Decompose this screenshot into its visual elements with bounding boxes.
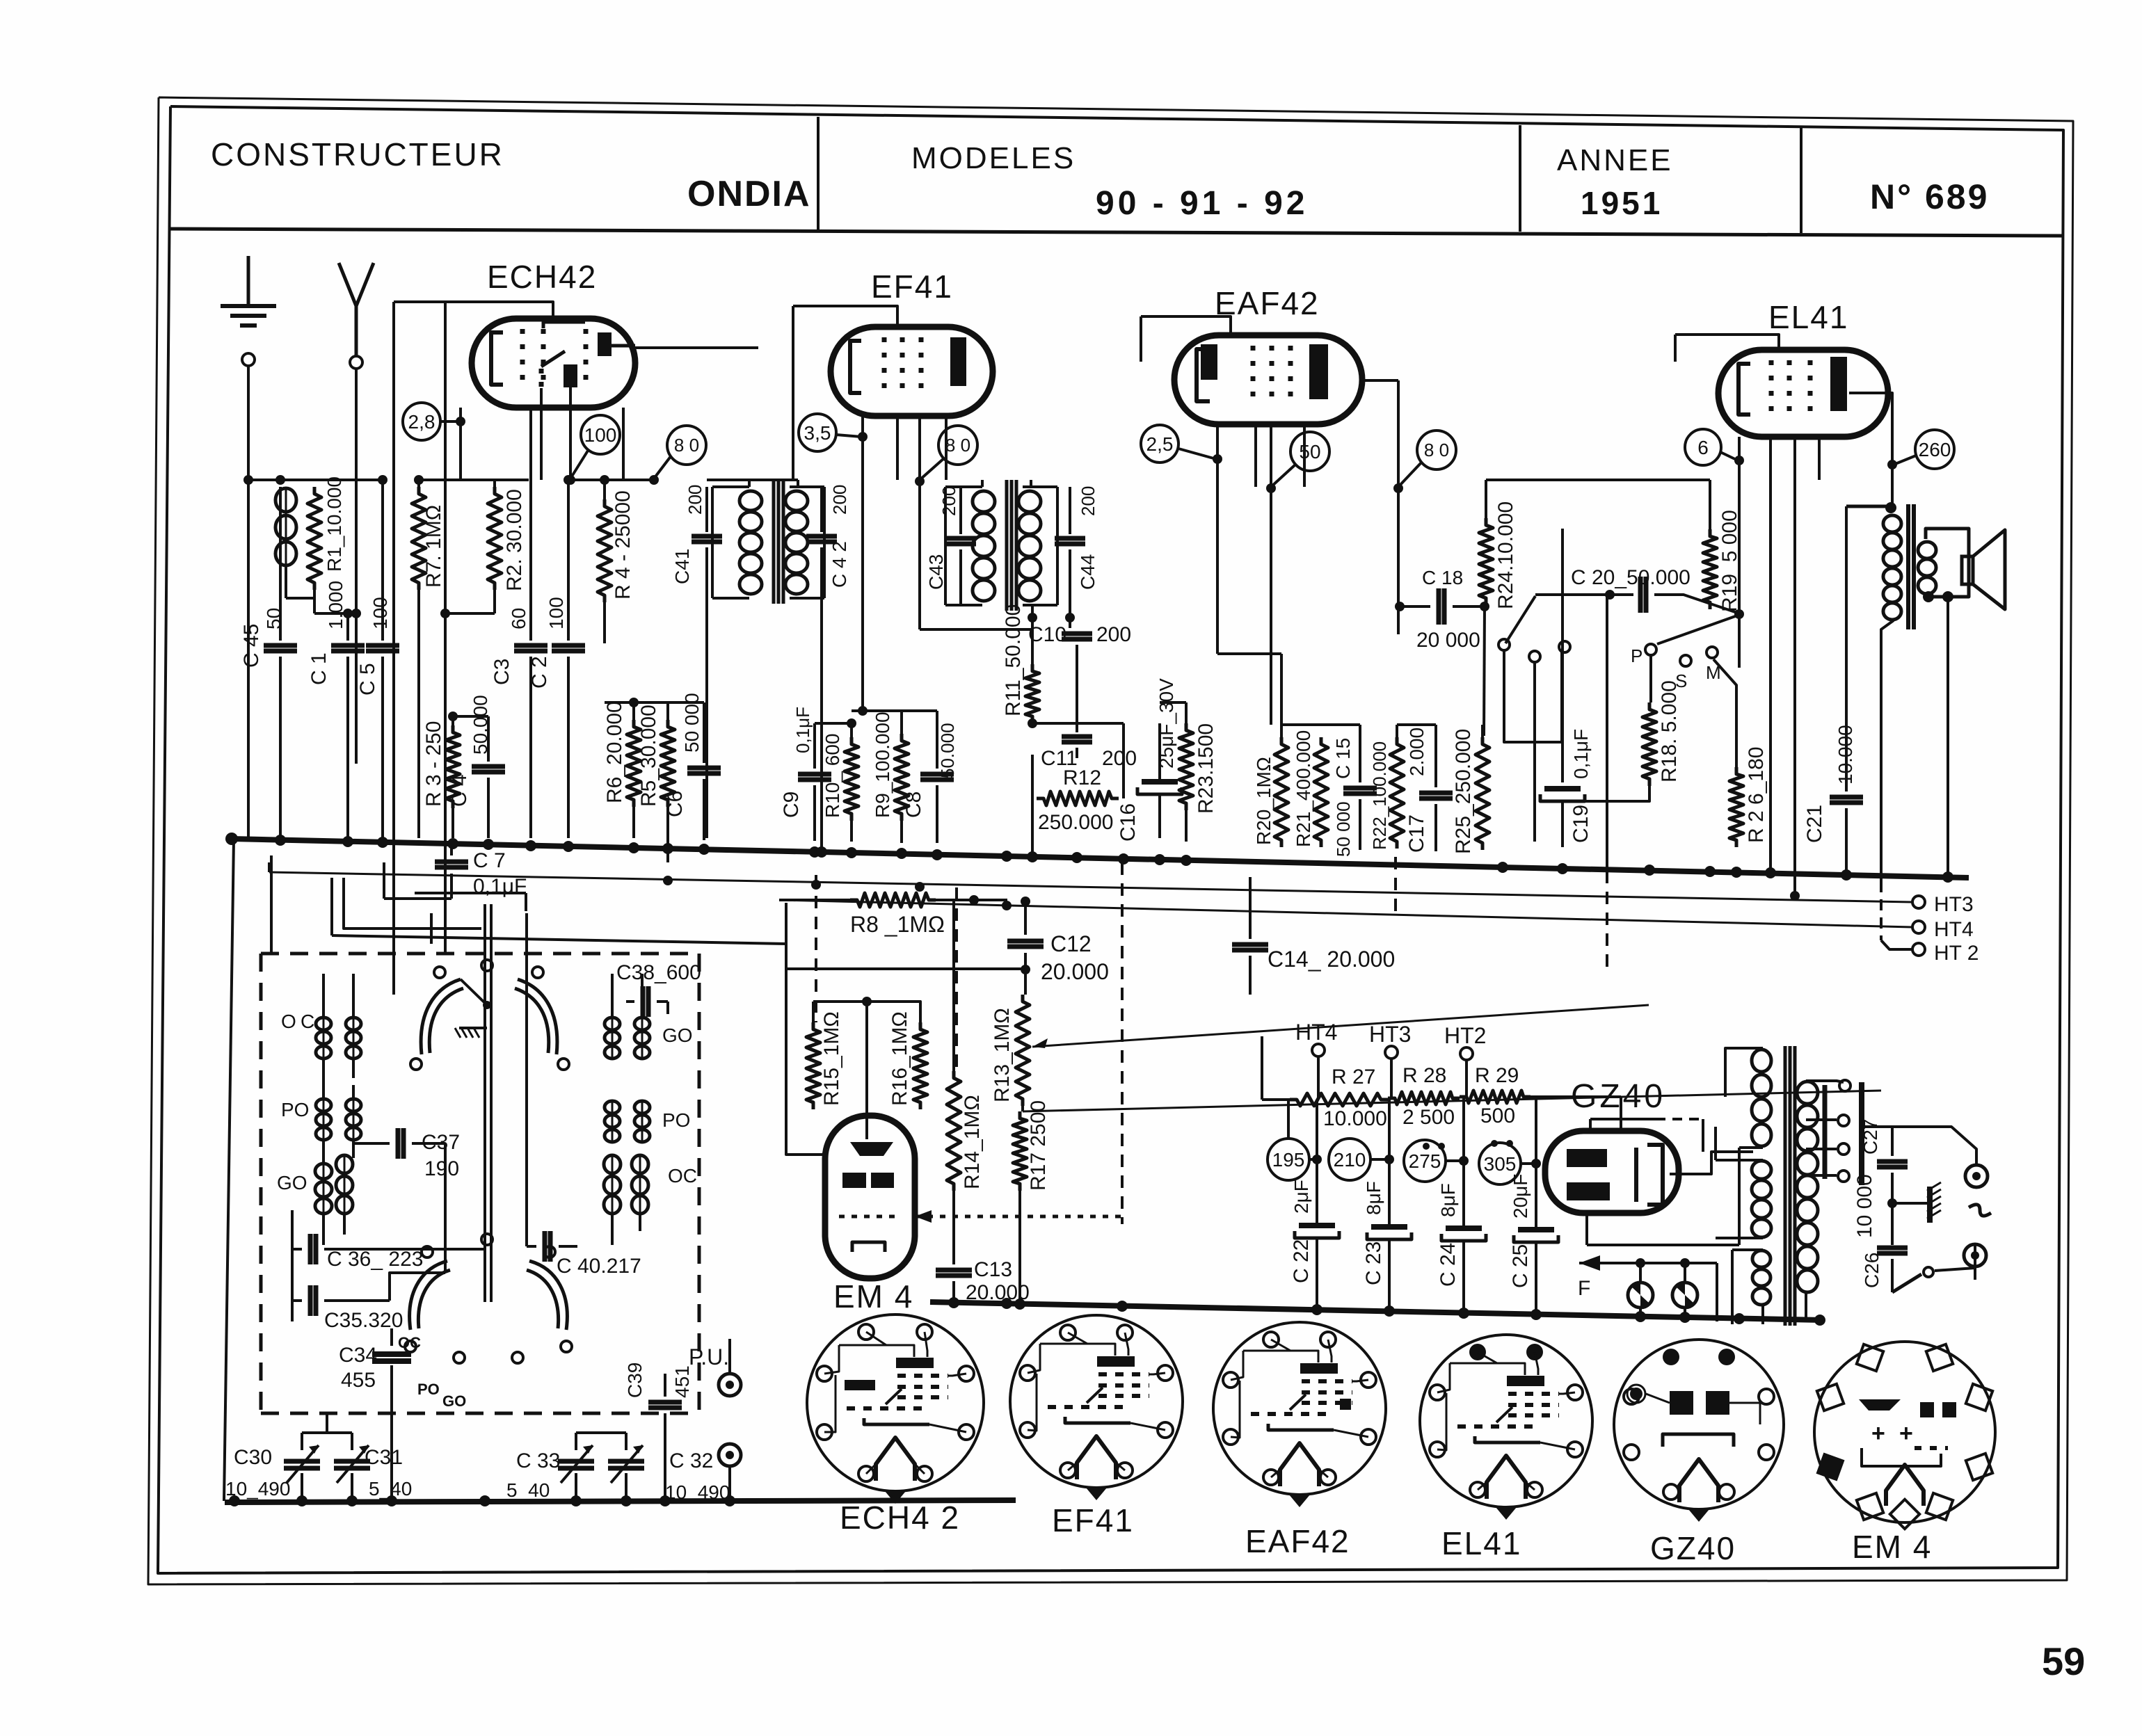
svg-text:200: 200	[1102, 747, 1137, 770]
svg-text:C26: C26	[1861, 1253, 1883, 1288]
svg-text:50: 50	[1299, 441, 1320, 463]
svg-text:C 22: C 22	[1290, 1239, 1313, 1283]
svg-text:100: 100	[369, 597, 391, 629]
svg-text:500: 500	[1480, 1104, 1515, 1127]
svg-text:ECH42: ECH42	[487, 259, 597, 295]
svg-text:P: P	[1631, 645, 1643, 666]
svg-text:C9: C9	[780, 791, 803, 818]
svg-text:C 15: C 15	[1332, 738, 1354, 779]
svg-text:C 2: C 2	[528, 656, 551, 689]
svg-text:C 40.217: C 40.217	[557, 1255, 641, 1278]
svg-text:200: 200	[938, 486, 959, 516]
svg-text:R18. 5.000: R18. 5.000	[1658, 680, 1681, 782]
svg-text:195: 195	[1272, 1149, 1305, 1171]
svg-text:260: 260	[1919, 439, 1951, 460]
svg-text:2.000: 2.000	[1406, 728, 1428, 776]
svg-text:EAF42: EAF42	[1245, 1523, 1350, 1559]
svg-text:F: F	[1578, 1277, 1590, 1300]
svg-text:8 0: 8 0	[945, 435, 970, 456]
svg-text:451: 451	[671, 1365, 693, 1398]
svg-text:50 000: 50 000	[681, 693, 703, 753]
svg-text:1.000: 1.000	[325, 581, 346, 629]
svg-text:R1_10.000: R1_10.000	[323, 476, 345, 572]
svg-text:HT4: HT4	[1295, 1020, 1337, 1045]
svg-text:C14_ 20.000: C14_ 20.000	[1268, 947, 1395, 972]
svg-text:C 5: C 5	[356, 663, 379, 696]
svg-text:C 25: C 25	[1509, 1244, 1532, 1288]
svg-text:100: 100	[545, 597, 567, 629]
svg-text:OC: OC	[398, 1334, 421, 1351]
svg-text:50 000: 50 000	[1333, 801, 1354, 857]
svg-text:C39: C39	[624, 1363, 646, 1398]
svg-text:GO: GO	[662, 1024, 693, 1046]
svg-text:100: 100	[584, 424, 617, 446]
svg-text:GO: GO	[442, 1392, 466, 1410]
svg-text:N° 689: N° 689	[1870, 177, 1989, 216]
svg-text:MODELES: MODELES	[911, 141, 1076, 175]
svg-text:ANNEE: ANNEE	[1557, 143, 1673, 177]
svg-text:8μF: 8μF	[1437, 1183, 1459, 1217]
svg-text:R5_30.000: R5_30.000	[637, 705, 660, 807]
svg-text:R 2 6_180: R 2 6_180	[1745, 747, 1768, 843]
svg-text:R23.1500: R23.1500	[1194, 723, 1217, 814]
svg-text:R2. 30.000: R2. 30.000	[503, 489, 526, 591]
svg-text:8μF: 8μF	[1363, 1181, 1384, 1215]
svg-text:60: 60	[508, 608, 529, 629]
svg-text:R9_100.000: R9_100.000	[872, 712, 893, 818]
svg-text:R13_1MΩ: R13_1MΩ	[991, 1008, 1014, 1102]
svg-text:C 32: C 32	[669, 1449, 713, 1472]
svg-text:R20_1MΩ: R20_1MΩ	[1253, 757, 1274, 845]
svg-text:1951: 1951	[1581, 185, 1663, 221]
svg-text:R21_400.000: R21_400.000	[1293, 730, 1314, 847]
svg-text:C41: C41	[671, 549, 693, 584]
svg-text:C38_600: C38_600	[616, 961, 701, 984]
svg-text:GZ40: GZ40	[1571, 1078, 1665, 1115]
svg-text:C44: C44	[1077, 554, 1098, 590]
svg-text:R10_ 600: R10_ 600	[822, 734, 843, 818]
svg-text:6: 6	[1697, 437, 1709, 458]
svg-text:0,1μF: 0,1μF	[792, 707, 813, 753]
svg-text:50.000: 50.000	[470, 695, 491, 755]
svg-text:8 0: 8 0	[1424, 440, 1449, 460]
svg-text:HT2: HT2	[1444, 1023, 1486, 1048]
svg-text:50.000: 50.000	[937, 723, 958, 778]
svg-text:C3: C3	[490, 659, 513, 685]
svg-text:200: 200	[685, 485, 705, 515]
svg-text:59: 59	[2042, 1639, 2085, 1683]
svg-text:EF41: EF41	[1052, 1502, 1134, 1538]
svg-text:C 4 2: C 4 2	[829, 541, 850, 588]
svg-text:C 45: C 45	[240, 624, 263, 668]
svg-text:200: 200	[1096, 623, 1131, 646]
svg-text:P.U.: P.U.	[689, 1344, 729, 1369]
svg-text:R24.10.000: R24.10.000	[1494, 501, 1517, 609]
svg-text:C43: C43	[925, 554, 947, 590]
svg-text:90 - 91 - 92: 90 - 91 - 92	[1096, 185, 1308, 222]
svg-text:25μF_30V: 25μF_30V	[1156, 678, 1177, 769]
svg-text:R 28: R 28	[1402, 1064, 1446, 1087]
svg-text:C21: C21	[1803, 805, 1826, 843]
svg-text:PO: PO	[662, 1109, 690, 1131]
svg-text:HT4: HT4	[1934, 918, 1974, 941]
svg-text:R8 _1MΩ: R8 _1MΩ	[850, 912, 945, 937]
svg-text:C 18: C 18	[1422, 567, 1463, 588]
svg-text:GZ40: GZ40	[1650, 1530, 1736, 1566]
svg-text:C8: C8	[902, 791, 925, 818]
svg-text:C31: C31	[365, 1446, 403, 1469]
svg-text:EF41: EF41	[871, 268, 953, 305]
svg-text:20.000: 20.000	[1041, 959, 1109, 984]
svg-text:C30: C30	[234, 1446, 272, 1469]
svg-text:10.000: 10.000	[1323, 1107, 1387, 1130]
svg-text:2,5: 2,5	[1146, 433, 1174, 455]
svg-text:R15_1MΩ: R15_1MΩ	[820, 1011, 843, 1106]
svg-text:R11_50.000: R11_50.000	[1002, 604, 1025, 716]
svg-text:0,1μF: 0,1μF	[473, 875, 527, 898]
svg-text:R 3 - 250: R 3 - 250	[422, 721, 445, 807]
svg-text:C13: C13	[974, 1258, 1012, 1281]
svg-text:3,5: 3,5	[804, 422, 831, 444]
svg-text:C 23: C 23	[1362, 1241, 1385, 1285]
svg-text:+: +	[1899, 1420, 1913, 1447]
svg-text:R22_100.000: R22_100.000	[1369, 741, 1390, 850]
svg-text:C 7: C 7	[473, 849, 506, 872]
svg-text:GO: GO	[277, 1172, 307, 1193]
svg-text:OC: OC	[668, 1165, 697, 1187]
svg-text:R17 2500: R17 2500	[1027, 1100, 1050, 1191]
svg-text:305: 305	[1484, 1153, 1517, 1175]
svg-text:200: 200	[829, 485, 850, 515]
svg-text:5_40: 5_40	[506, 1479, 550, 1501]
svg-text:C27: C27	[1860, 1119, 1881, 1155]
svg-text:8 0: 8 0	[674, 435, 699, 456]
svg-text:2 500: 2 500	[1402, 1106, 1455, 1129]
svg-text:R14_1MΩ: R14_1MΩ	[961, 1095, 984, 1189]
svg-text:C10: C10	[1028, 623, 1066, 646]
svg-text:455: 455	[341, 1369, 376, 1392]
svg-text:HT 2: HT 2	[1934, 942, 1979, 965]
svg-text:C19: C19	[1569, 805, 1592, 843]
svg-text:R 4 - 25000: R 4 - 25000	[612, 490, 634, 600]
svg-text:CONSTRUCTEUR: CONSTRUCTEUR	[211, 136, 504, 172]
svg-text:20 000: 20 000	[1416, 629, 1480, 652]
svg-text:R 29: R 29	[1475, 1064, 1519, 1087]
svg-text:+: +	[1871, 1420, 1885, 1447]
svg-text:HT3: HT3	[1369, 1022, 1411, 1047]
svg-text:O: O	[281, 1011, 296, 1032]
svg-text:EL41: EL41	[1441, 1525, 1521, 1561]
svg-text:C 36_ 223: C 36_ 223	[327, 1248, 423, 1271]
svg-text:C 33: C 33	[516, 1449, 560, 1472]
svg-text:200: 200	[1078, 486, 1098, 516]
svg-text:50: 50	[263, 608, 285, 629]
svg-text:C: C	[301, 1011, 314, 1032]
svg-text:C17: C17	[1405, 814, 1428, 853]
svg-text:2,8: 2,8	[408, 411, 435, 433]
svg-text:2μF: 2μF	[1290, 1180, 1312, 1214]
svg-text:R12: R12	[1063, 766, 1101, 789]
svg-text:EM 4: EM 4	[833, 1278, 913, 1315]
svg-text:ONDIA: ONDIA	[687, 174, 811, 214]
svg-text:20μF: 20μF	[1510, 1174, 1531, 1219]
svg-text:C 1: C 1	[307, 652, 330, 685]
svg-text:R 27: R 27	[1332, 1066, 1375, 1088]
svg-text:C 24: C 24	[1437, 1243, 1460, 1287]
svg-text:EL41: EL41	[1768, 299, 1848, 335]
svg-text:PO: PO	[417, 1381, 440, 1398]
svg-text:ECH4 2: ECH4 2	[840, 1500, 960, 1536]
svg-text:C12: C12	[1050, 931, 1092, 956]
svg-text:250.000: 250.000	[1038, 811, 1113, 834]
svg-text:R7. 1MΩ: R7. 1MΩ	[422, 505, 445, 588]
svg-text:PO: PO	[281, 1099, 309, 1120]
svg-text:190: 190	[424, 1157, 459, 1180]
svg-text:C16: C16	[1117, 803, 1140, 842]
svg-text:R25_250.000: R25_250.000	[1452, 729, 1475, 854]
svg-text:C34: C34	[339, 1344, 377, 1367]
svg-text:C 4: C 4	[448, 774, 471, 807]
svg-text:R6_20.000: R6_20.000	[603, 701, 626, 803]
svg-text:C37: C37	[422, 1131, 460, 1154]
svg-text:C 20_50.000: C 20_50.000	[1571, 566, 1691, 589]
svg-text:R16_1MΩ: R16_1MΩ	[888, 1011, 911, 1106]
svg-text:10 000: 10 000	[1853, 1174, 1876, 1238]
svg-text:EM 4: EM 4	[1852, 1529, 1932, 1565]
svg-text:210: 210	[1334, 1149, 1366, 1171]
svg-text:275: 275	[1409, 1150, 1441, 1172]
svg-text:0,1μF: 0,1μF	[1570, 729, 1592, 779]
svg-text:C6: C6	[664, 791, 687, 817]
svg-text:HT3: HT3	[1934, 893, 1974, 916]
